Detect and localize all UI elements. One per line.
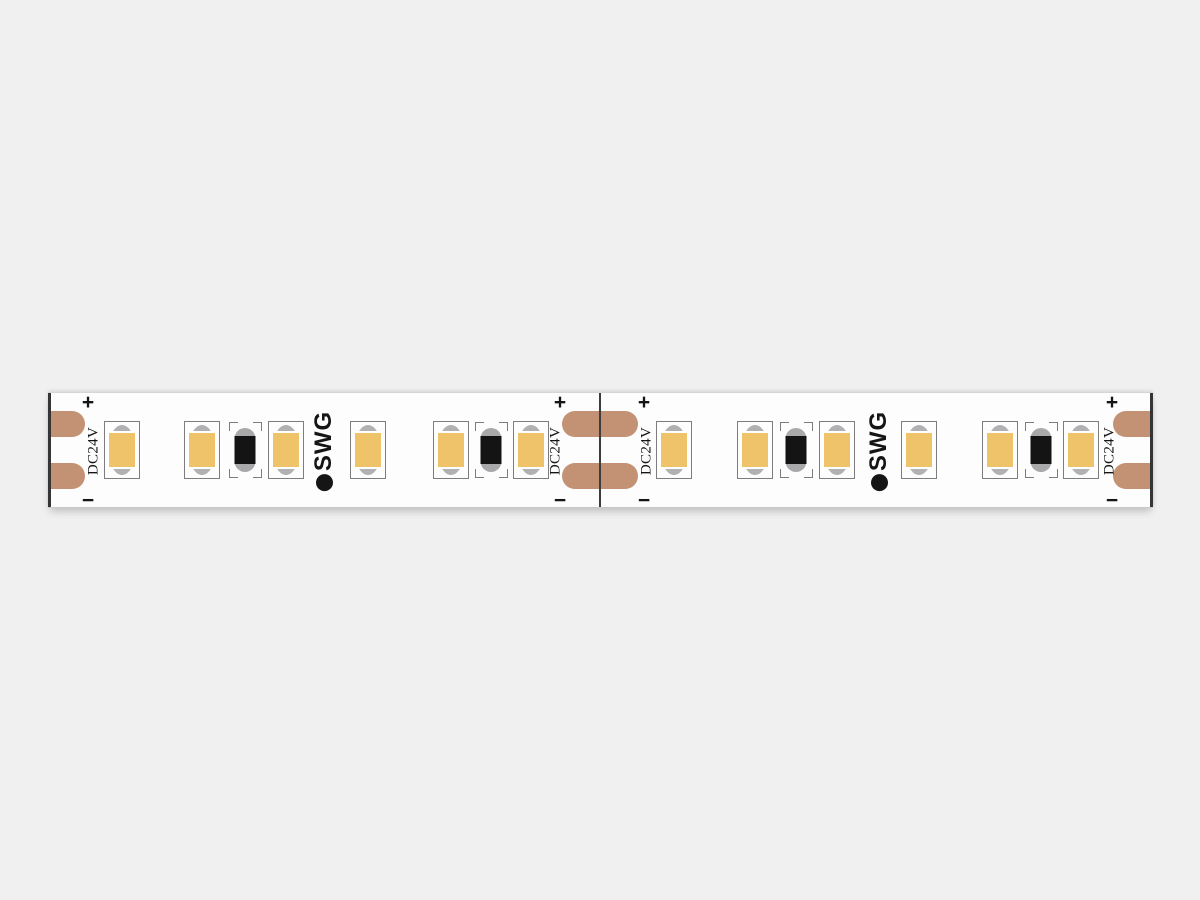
led-chip <box>901 421 937 479</box>
solder-pad <box>1113 411 1153 437</box>
led-emitter <box>985 431 1015 469</box>
led-emitter <box>822 431 852 469</box>
resistor-body <box>235 436 256 464</box>
brand-label: SWG <box>312 411 336 471</box>
led-emitter <box>271 431 301 469</box>
resistor <box>1025 422 1058 478</box>
strip-edge <box>1150 393 1153 507</box>
resistor <box>475 422 508 478</box>
polarity-plus: + <box>77 391 99 413</box>
brand-dot-icon <box>871 474 888 491</box>
resistor-outline-corner <box>780 422 789 431</box>
led-chip <box>184 421 220 479</box>
resistor-outline-corner <box>1049 469 1058 478</box>
brand-dot-icon <box>316 474 333 491</box>
polarity-minus: − <box>633 489 655 511</box>
led-strip: SWGSWG+−DC24V+−DC24V+−DC24V+−DC24V <box>48 392 1153 508</box>
led-chip <box>1063 421 1099 479</box>
product-image: SWGSWG+−DC24V+−DC24V+−DC24V+−DC24V <box>0 0 1200 900</box>
resistor-body <box>786 436 807 464</box>
solder-pad <box>1113 463 1153 489</box>
resistor-outline-corner <box>229 469 238 478</box>
resistor-outline-corner <box>499 422 508 431</box>
resistor-outline-corner <box>229 422 238 431</box>
polarity-plus: + <box>633 391 655 413</box>
resistor-outline-corner <box>1049 422 1058 431</box>
resistor-outline-corner <box>499 469 508 478</box>
polarity-minus: − <box>549 489 571 511</box>
solder-pad <box>48 463 85 489</box>
resistor-body <box>1031 436 1052 464</box>
brand-logo: SWG <box>867 411 891 491</box>
voltage-label: DC24V <box>640 427 655 475</box>
polarity-plus: + <box>1101 391 1123 413</box>
voltage-label: DC24V <box>1103 427 1118 475</box>
led-emitter <box>436 431 466 469</box>
led-emitter <box>659 431 689 469</box>
led-chip <box>268 421 304 479</box>
polarity-plus: + <box>549 391 571 413</box>
resistor-outline-corner <box>253 422 262 431</box>
voltage-label: DC24V <box>549 427 564 475</box>
resistor-outline-corner <box>475 422 484 431</box>
resistor-outline-corner <box>804 469 813 478</box>
resistor <box>780 422 813 478</box>
resistor-body <box>481 436 502 464</box>
solder-pad <box>48 411 85 437</box>
resistor-outline-corner <box>475 469 484 478</box>
led-chip <box>513 421 549 479</box>
led-chip <box>819 421 855 479</box>
led-chip <box>433 421 469 479</box>
resistor-outline-corner <box>1025 422 1034 431</box>
brand-label: SWG <box>867 411 891 471</box>
led-emitter <box>187 431 217 469</box>
led-emitter <box>107 431 137 469</box>
led-emitter <box>1066 431 1096 469</box>
led-chip <box>982 421 1018 479</box>
resistor-outline-corner <box>253 469 262 478</box>
strip-edge <box>48 393 51 507</box>
led-chip <box>737 421 773 479</box>
led-chip <box>350 421 386 479</box>
led-emitter <box>353 431 383 469</box>
cut-line <box>599 393 601 507</box>
resistor-outline-corner <box>780 469 789 478</box>
polarity-minus: − <box>1101 489 1123 511</box>
led-emitter <box>740 431 770 469</box>
resistor <box>229 422 262 478</box>
resistor-outline-corner <box>1025 469 1034 478</box>
voltage-label: DC24V <box>87 427 102 475</box>
led-emitter <box>904 431 934 469</box>
resistor-outline-corner <box>804 422 813 431</box>
led-chip <box>656 421 692 479</box>
led-chip <box>104 421 140 479</box>
polarity-minus: − <box>77 489 99 511</box>
led-emitter <box>516 431 546 469</box>
brand-logo: SWG <box>312 411 336 491</box>
